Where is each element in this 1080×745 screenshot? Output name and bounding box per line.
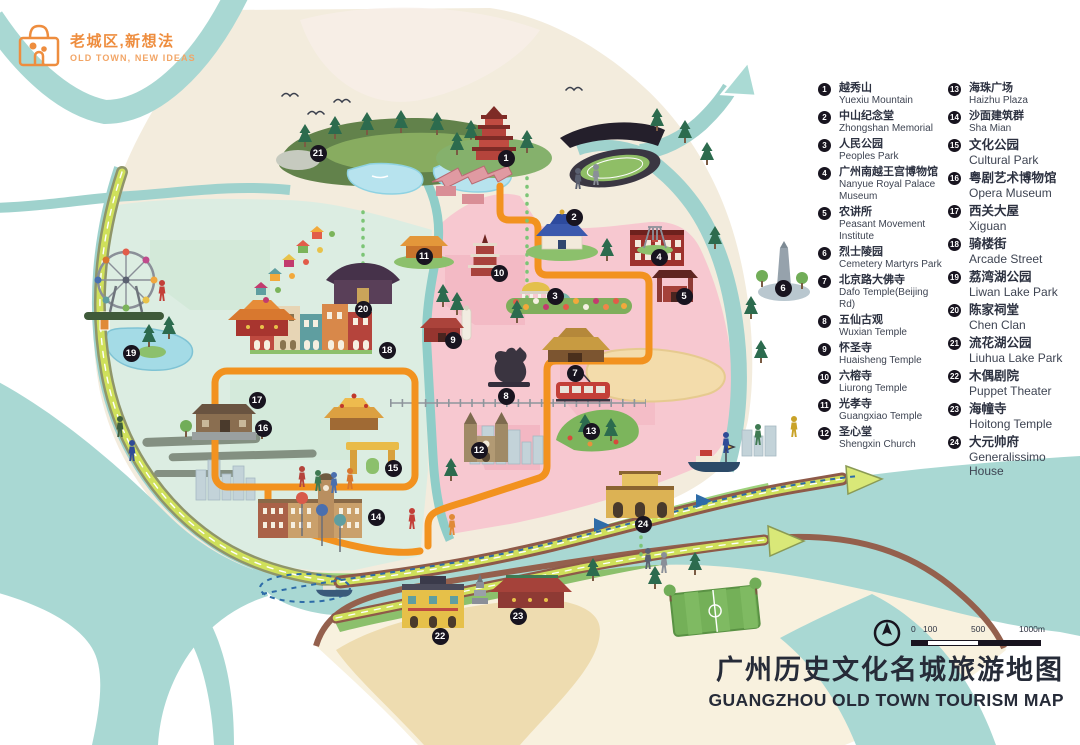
legend-number-badge: 12 (818, 427, 831, 440)
legend-item-23: 23海幢寺Hoitong Temple (948, 402, 1080, 431)
old-town-gate-icon (16, 24, 62, 68)
legend-name-zh: 怀圣寺 (839, 342, 922, 355)
map-title-en: GUANGZHOU OLD TOWN TOURISM MAP (708, 690, 1064, 711)
legend-number-badge: 13 (948, 83, 961, 96)
scale-label-0: 0 (911, 624, 916, 634)
legend-item-24: 24大元帅府Generalissimo House (948, 435, 1080, 478)
legend-name-zh: 沙面建筑群 (969, 110, 1024, 123)
peasant-institute-icon (652, 270, 698, 302)
legend-item-10: 10六榕寺Liurong Temple (818, 370, 946, 395)
legend-name-en: Peasant Movement Institute (839, 219, 946, 243)
legend-name-zh: 骑楼街 (969, 237, 1042, 252)
scale-bar: 0 100 500 1000m (872, 618, 1041, 648)
legend-name-zh: 农讲所 (839, 206, 946, 219)
legend-item-7: 7北京路大佛寺Dafo Temple(Beijing Rd) (818, 274, 946, 311)
legend-item-8: 8五仙古观Wuxian Temple (818, 314, 946, 339)
legend-number-badge: 3 (818, 139, 831, 152)
logo-slogan-en: OLD TOWN, NEW IDEAS (70, 53, 196, 63)
legend-item-1: 1越秀山Yuexiu Mountain (818, 82, 946, 107)
legend-name-en: Sha Mian (969, 123, 1024, 135)
guangzhou-tourism-map-page: { "logo": { "zh": "老城区,新想法", "en": "OLD … (0, 0, 1080, 745)
legend-name-zh: 光孝寺 (839, 398, 922, 411)
legend-name-zh: 陈家祠堂 (969, 303, 1026, 318)
map-title-zh: 广州历史文化名城旅游地图 (708, 648, 1064, 687)
legend-item-19: 19荔湾湖公园Liwan Lake Park (948, 270, 1080, 299)
martyrs-monument-icon (756, 241, 810, 301)
legend-name-zh: 人民公园 (839, 138, 898, 151)
legend-item-3: 3人民公园Peoples Park (818, 138, 946, 163)
legend-item-14: 14沙面建筑群Sha Mian (948, 110, 1080, 135)
legend-name-en: Cemetery Martyrs Park (839, 259, 942, 271)
legend-column-1: 1越秀山Yuexiu Mountain2中山纪念堂Zhongshan Memor… (818, 82, 946, 454)
legend-number-badge: 7 (818, 275, 831, 288)
legend-item-21: 21流花湖公园Liuhua Lake Park (948, 336, 1080, 365)
legend-name-en: Generalissimo House (969, 450, 1080, 478)
legend-name-en: Peoples Park (839, 151, 898, 163)
legend-number-badge: 11 (818, 399, 831, 412)
legend-item-17: 17西关大屋Xiguan (948, 204, 1080, 233)
compass-icon (872, 618, 902, 648)
scale-bar-segments: 0 100 500 1000m (911, 624, 1041, 648)
legend-number-badge: 4 (818, 167, 831, 180)
scale-label-100: 100 (923, 624, 937, 634)
legend-name-en: Huaisheng Temple (839, 355, 922, 367)
legend-item-18: 18骑楼街Arcade Street (948, 237, 1080, 266)
legend-name-zh: 烈士陵园 (839, 246, 942, 259)
legend-name-zh: 海幢寺 (969, 402, 1052, 417)
flower-bed (506, 298, 632, 314)
legend-number-badge: 14 (948, 111, 961, 124)
legend-name-en: Liurong Temple (839, 383, 907, 395)
legend-item-20: 20陈家祠堂Chen Clan (948, 303, 1080, 332)
legend-number-badge: 23 (948, 403, 961, 416)
legend-number-badge: 5 (818, 207, 831, 220)
legend-number-badge: 24 (948, 436, 961, 449)
legend-item-22: 22木偶剧院Puppet Theater (948, 369, 1080, 398)
legend-name-en: Wuxian Temple (839, 327, 907, 339)
legend-name-en: Cultural Park (969, 153, 1038, 167)
legend-number-badge: 10 (818, 371, 831, 384)
legend-name-en: Xiguan (969, 219, 1019, 233)
legend-name-zh: 海珠广场 (969, 82, 1028, 95)
legend-name-zh: 北京路大佛寺 (839, 274, 946, 287)
legend-item-6: 6烈士陵园Cemetery Martyrs Park (818, 246, 946, 271)
legend-name-zh: 圣心堂 (839, 426, 916, 439)
legend-number-badge: 21 (948, 337, 961, 350)
legend-name-zh: 木偶剧院 (969, 369, 1052, 384)
legend-number-badge: 19 (948, 271, 961, 284)
legend-name-zh: 大元帅府 (969, 435, 1080, 450)
legend-number-badge: 9 (818, 343, 831, 356)
legend-name-en: Nanyue Royal Palace Museum (839, 179, 946, 203)
legend-item-13: 13海珠广场Haizhu Plaza (948, 82, 1080, 107)
legend-name-en: Puppet Theater (969, 384, 1052, 398)
legend-name-en: Liwan Lake Park (969, 285, 1058, 299)
legend-column-2: 13海珠广场Haizhu Plaza14沙面建筑群Sha Mian15文化公园C… (948, 82, 1080, 482)
legend-number-badge: 16 (948, 172, 961, 185)
legend-item-16: 16粤剧艺术博物馆Opera Museum (948, 171, 1080, 200)
legend-name-zh: 文化公园 (969, 138, 1038, 153)
legend-name-zh: 粤剧艺术博物馆 (969, 171, 1057, 186)
legend-number-badge: 15 (948, 139, 961, 152)
logo: 老城区,新想法 OLD TOWN, NEW IDEAS (16, 24, 196, 68)
legend-item-9: 9怀圣寺Huaisheng Temple (818, 342, 946, 367)
legend-name-en: Opera Museum (969, 186, 1057, 200)
legend-name-zh: 流花湖公园 (969, 336, 1062, 351)
river-flow-arrow-ne (722, 62, 756, 96)
legend-name-zh: 西关大屋 (969, 204, 1019, 219)
legend-name-zh: 荔湾湖公园 (969, 270, 1058, 285)
legend-name-en: Haizhu Plaza (969, 95, 1028, 107)
legend-name-zh: 广州南越王宫博物馆 (839, 166, 946, 179)
legend-name-en: Guangxiao Temple (839, 411, 922, 423)
legend-name-en: Yuexiu Mountain (839, 95, 913, 107)
legend-name-en: Zhongshan Memorial (839, 123, 933, 135)
legend-name-en: Hoitong Temple (969, 417, 1052, 431)
legend-name-en: Liuhua Lake Park (969, 351, 1062, 365)
legend-name-zh: 六榕寺 (839, 370, 907, 383)
legend-name-zh: 越秀山 (839, 82, 913, 95)
scale-label-500: 500 (971, 624, 985, 634)
legend-number-badge: 18 (948, 238, 961, 251)
map-title-block: 广州历史文化名城旅游地图 GUANGZHOU OLD TOWN TOURISM … (708, 648, 1064, 711)
scale-label-1000: 1000m (1019, 624, 1045, 634)
legend-item-4: 4广州南越王宫博物馆Nanyue Royal Palace Museum (818, 166, 946, 203)
legend-name-en: Arcade Street (969, 252, 1042, 266)
legend-item-2: 2中山纪念堂Zhongshan Memorial (818, 110, 946, 135)
legend-name-en: Shengxin Church (839, 439, 916, 451)
legend-number-badge: 2 (818, 111, 831, 124)
legend-item-11: 11光孝寺Guangxiao Temple (818, 398, 946, 423)
legend-name-en: Chen Clan (969, 318, 1026, 332)
legend-number-badge: 1 (818, 83, 831, 96)
cultural-park-gate-icon (346, 442, 399, 474)
legend-item-15: 15文化公园Cultural Park (948, 138, 1080, 167)
legend-item-5: 5农讲所Peasant Movement Institute (818, 206, 946, 243)
legend-name-en: Dafo Temple(Beijing Rd) (839, 287, 946, 311)
legend-number-badge: 6 (818, 247, 831, 260)
legend-name-zh: 五仙古观 (839, 314, 907, 327)
legend-number-badge: 8 (818, 315, 831, 328)
legend-name-zh: 中山纪念堂 (839, 110, 933, 123)
logo-slogan-zh: 老城区,新想法 (70, 30, 196, 51)
legend-item-12: 12圣心堂Shengxin Church (818, 426, 946, 451)
legend-number-badge: 22 (948, 370, 961, 383)
legend-number-badge: 20 (948, 304, 961, 317)
legend-number-badge: 17 (948, 205, 961, 218)
